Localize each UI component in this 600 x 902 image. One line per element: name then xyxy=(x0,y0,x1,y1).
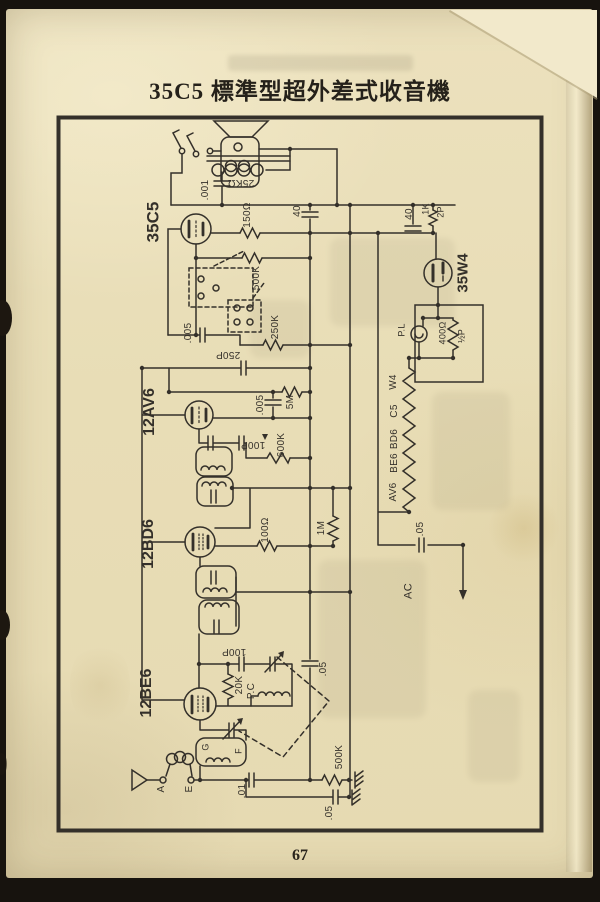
schematic-label: 40 xyxy=(293,205,303,217)
schematic-label: 35C5 xyxy=(145,202,162,243)
schematic-label: 5M xyxy=(286,395,296,410)
schematic-label: AC xyxy=(404,583,415,599)
schematic-label: 20K xyxy=(235,676,245,695)
schematic-label: 40 xyxy=(405,208,415,220)
schematic-label: 2P xyxy=(437,206,446,218)
schematic-label: .005 xyxy=(256,395,266,416)
schematic-labels-layer: 35C512AV612BD612BE635W4.00125KΩ150Ω40401… xyxy=(0,0,600,902)
scanned-book-photo: { "page": { "title": "35C5 標準型超外差式收音機", … xyxy=(0,0,600,902)
schematic-label: 100Ω xyxy=(261,517,271,542)
schematic-label: 500K xyxy=(252,266,262,291)
schematic-label: P.C xyxy=(247,683,257,699)
schematic-label: .05 xyxy=(319,662,329,677)
schematic-label: 250P xyxy=(216,349,241,359)
schematic-label: .005 xyxy=(184,323,194,344)
schematic-label: 12AV6 xyxy=(142,388,158,436)
schematic-label: AV6 xyxy=(389,482,399,501)
schematic-label: 12BD6 xyxy=(141,519,157,569)
schematic-label: 12BE6 xyxy=(139,669,155,718)
schematic-label: 1K xyxy=(422,203,431,215)
schematic-label: 25KΩ xyxy=(228,177,254,187)
schematic-label: E xyxy=(185,786,195,793)
schematic-label: 400Ω xyxy=(439,322,448,345)
schematic-label: .001 xyxy=(201,180,211,201)
schematic-label: A xyxy=(157,786,167,793)
schematic-label: .01 xyxy=(238,784,248,799)
schematic-label: 100P xyxy=(241,439,266,449)
schematic-label: 600K xyxy=(277,433,287,458)
schematic-label: BE6 xyxy=(390,453,400,473)
schematic-label: 500K xyxy=(335,745,345,770)
schematic-label: P.L xyxy=(398,323,407,336)
schematic-label: .05 xyxy=(416,522,426,537)
schematic-label: .05 xyxy=(325,806,335,821)
schematic-label: 35W4 xyxy=(456,253,471,292)
schematic-label: 250K xyxy=(271,315,281,340)
schematic-label: C5 xyxy=(390,404,400,417)
schematic-label: W4 xyxy=(389,374,399,390)
schematic-label: 100P xyxy=(222,646,247,656)
schematic-label: 1M xyxy=(317,521,327,536)
schematic-label: G xyxy=(202,743,211,750)
schematic-label: BD6 xyxy=(390,429,400,449)
schematic-label: ½P xyxy=(458,329,467,343)
schematic-label: F xyxy=(235,748,244,754)
schematic-label: 150Ω xyxy=(243,202,253,227)
